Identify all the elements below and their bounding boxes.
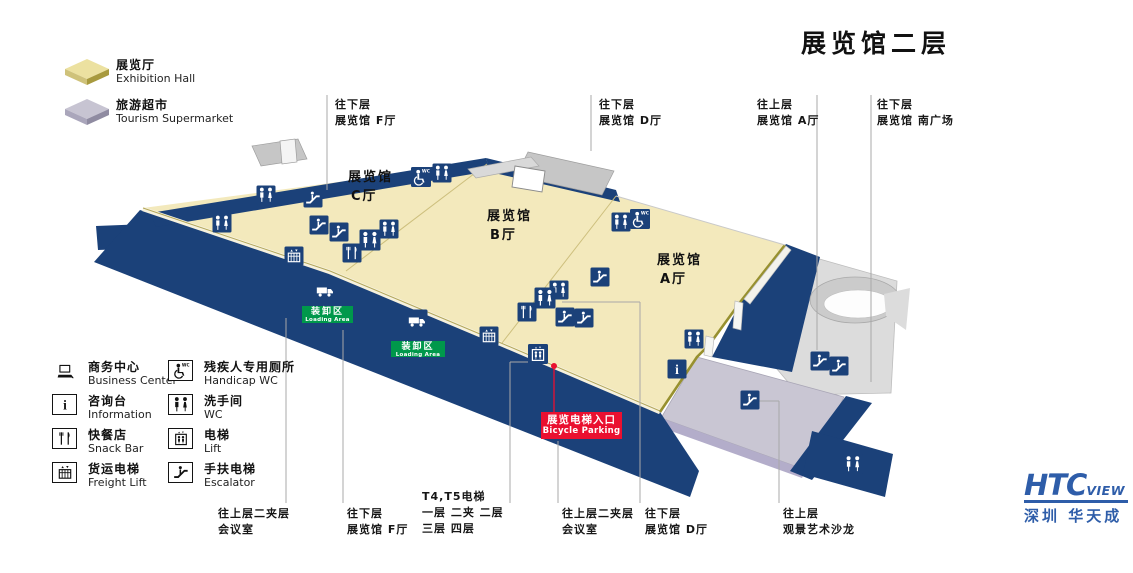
hall-label-C厅: 展览馆C厅	[348, 168, 393, 206]
salon-ring-inner	[824, 290, 892, 318]
lift-legend-text: 电梯Lift	[204, 428, 230, 455]
roof-doorway	[512, 166, 545, 192]
wc-icon-bg	[433, 164, 452, 183]
wc-label-zh: 洗手间	[204, 394, 243, 408]
tourism-supermarket-swatch-icon	[62, 96, 112, 130]
hall-label-A厅: 展览馆A厅	[657, 251, 702, 289]
htcview-logo-wordmark: HTCVIEW	[1024, 471, 1128, 503]
exhibition-hall-swatch-icon	[62, 56, 112, 90]
wc-icon	[535, 288, 556, 309]
information-label-zh: 咨询台	[88, 394, 152, 408]
callout-line: 观景艺术沙龙	[783, 522, 855, 538]
callout-line: 往上层	[757, 97, 819, 113]
legend-item-exhibition-hall: 展览厅Exhibition Hall	[62, 56, 112, 94]
information-icon-glyph	[675, 362, 679, 377]
wc-icon	[360, 230, 381, 251]
callout-label-9: 往上层观景艺术沙龙	[783, 506, 855, 538]
wc-legend-glyph	[170, 395, 192, 414]
business-center-legend-icon	[52, 360, 80, 383]
wc-icon-bg	[380, 220, 399, 239]
wc-icon	[257, 186, 276, 205]
hall-name: 展览馆	[657, 251, 702, 270]
freight-lift-icon	[480, 327, 499, 346]
wc-legend-icon	[168, 394, 193, 415]
callout-line: T4,T5电梯	[422, 489, 504, 505]
snack-bar-icon-bg	[518, 303, 537, 322]
handicap-wc-legend-glyph	[170, 361, 192, 380]
escalator-legend-glyph-use	[174, 466, 187, 477]
exhibition-hall-legend-text: 展览厅Exhibition Hall	[116, 58, 195, 85]
freight-lift-legend-icon	[52, 462, 77, 483]
floor-map-canvas: WC i	[0, 0, 1133, 573]
snack-bar-legend-glyph	[54, 429, 76, 448]
callout-label-8: 往下层展览馆 D厅	[645, 506, 708, 538]
escalator-icon	[575, 309, 594, 328]
callout-label-0: 往下层展览馆 F厅	[335, 97, 396, 129]
handicap-wc-icon	[630, 209, 650, 229]
freight-lift-icon	[285, 247, 304, 266]
roof-structure	[252, 139, 307, 166]
hall-a-wall-column	[704, 336, 714, 357]
callout-line: 往下层	[347, 506, 408, 522]
callout-line: 会议室	[562, 522, 634, 538]
callout-line: 展览馆 D厅	[599, 113, 662, 129]
loading-area-zh: 装卸区	[302, 308, 353, 317]
business-center-legend-glyph-use	[58, 365, 74, 378]
callout-line: 往上层	[783, 506, 855, 522]
loading-area-en: Loading Area	[391, 352, 445, 358]
callout-label-2: 往上层展览馆 A厅	[757, 97, 819, 129]
lift-legend-icon	[168, 428, 193, 449]
bicycle-parking-label: 展览电梯入口 Bicycle Parking	[541, 412, 622, 439]
exhibition-hall-label-en: Exhibition Hall	[116, 72, 195, 85]
page-title: 展览馆二层	[801, 24, 951, 60]
freight-lift-label-zh: 货运电梯	[88, 462, 147, 476]
loading-area-en: Loading Area	[302, 317, 353, 323]
freight-lift-legend-glyph	[54, 463, 76, 482]
information-legend-text: 咨询台Information	[88, 394, 152, 421]
snack-bar-icon	[343, 244, 362, 263]
callout-line: 往下层	[877, 97, 954, 113]
callout-label-6: T4,T5电梯一层 二夹 二层三层 四层	[422, 489, 504, 537]
callout-label-5: 往下层展览馆 F厅	[347, 506, 408, 538]
logo-view-text: VIEW	[1086, 483, 1125, 498]
hall-name: 展览馆	[348, 168, 393, 187]
exhibition-hall-label-zh: 展览厅	[116, 58, 195, 72]
escalator-icon	[811, 352, 830, 371]
escalator-legend-text: 手扶电梯Escalator	[204, 462, 256, 489]
callout-line: 展览馆 A厅	[757, 113, 819, 129]
business-center-legend-text: 商务中心Business Center	[88, 360, 177, 387]
escalator-label-en: Escalator	[204, 476, 256, 489]
snack-bar-icon	[518, 303, 537, 322]
freight-lift-label-en: Freight Lift	[88, 476, 147, 489]
handicap-wc-legend-icon	[168, 360, 193, 381]
hall-id: B厅	[487, 226, 532, 245]
snack-bar-icon-bg	[343, 244, 362, 263]
wc-icon-bg	[360, 230, 381, 251]
wc-legend-text: 洗手间WC	[204, 394, 243, 421]
snack-bar-label-en: Snack Bar	[88, 442, 143, 455]
escalator-label-zh: 手扶电梯	[204, 462, 256, 476]
callout-line: 往下层	[599, 97, 662, 113]
hall-id: C厅	[348, 187, 393, 206]
lift-label-en: Lift	[204, 442, 230, 455]
handicap-wc-legend-text: 残疾人专用厕所Handicap WC	[204, 360, 295, 387]
callout-line: 往上层二夹层	[218, 506, 290, 522]
escalator-icon	[591, 268, 610, 287]
handicap-wc-legend-glyph-use	[174, 362, 189, 378]
snack-bar-legend-icon	[52, 428, 77, 449]
callout-label-1: 往下层展览馆 D厅	[599, 97, 662, 129]
wc-icon	[612, 213, 631, 232]
callout-line: 展览馆 F厅	[347, 522, 408, 538]
tourism-supermarket-label-zh: 旅游超市	[116, 98, 233, 112]
lift-legend-glyph	[170, 429, 192, 448]
loading-area-label-1: 装卸区Loading Area	[302, 306, 353, 323]
logo-htc-text: HTC	[1024, 468, 1086, 502]
escalator-icon	[304, 189, 323, 208]
wc-icon-bg	[843, 454, 863, 474]
escalator-icon	[830, 357, 849, 376]
business-center-legend-glyph	[55, 362, 77, 381]
wc-icon	[685, 330, 704, 349]
escalator-icon	[330, 223, 349, 242]
information-icon	[668, 360, 687, 379]
callout-line: 一层 二夹 二层	[422, 505, 504, 521]
logo-company-text: 深圳 华天成	[1024, 505, 1128, 526]
business-center-label-en: Business Center	[88, 374, 177, 387]
callout-label-3: 往下层展览馆 南广场	[877, 97, 954, 129]
bicycle-parking-label-zh: 展览电梯入口	[541, 415, 622, 426]
hall-a-wall-column	[733, 301, 743, 330]
escalator-icon	[556, 308, 575, 327]
business-center-label-zh: 商务中心	[88, 360, 177, 374]
loading-area-label-2: 装卸区Loading Area	[391, 341, 445, 357]
wc-icon-bg	[213, 214, 232, 233]
snack-bar-legend-text: 快餐店Snack Bar	[88, 428, 143, 455]
hall-name: 展览馆	[487, 207, 532, 226]
entrance-dot	[551, 363, 557, 369]
wc-icon	[843, 454, 863, 474]
truck-icon	[315, 280, 336, 301]
wc-legend-glyph-use	[174, 397, 186, 411]
escalator-legend-glyph	[170, 463, 192, 482]
lift-legend-glyph-use	[175, 432, 186, 445]
wc-icon	[433, 164, 452, 183]
snack-bar-legend-glyph-use	[59, 432, 69, 444]
tourism-supermarket-legend-text: 旅游超市Tourism Supermarket	[116, 98, 233, 125]
callout-line: 展览馆 D厅	[645, 522, 708, 538]
hall-label-B厅: 展览馆B厅	[487, 207, 532, 245]
loading-area-zh: 装卸区	[391, 343, 445, 352]
information-label-en: Information	[88, 408, 152, 421]
wc-icon-bg	[685, 330, 704, 349]
information-legend-icon	[52, 394, 77, 415]
wc-icon	[380, 220, 399, 239]
handicap-wc-label-en: Handicap WC	[204, 374, 295, 387]
callout-line: 三层 四层	[422, 521, 504, 537]
callout-line: 会议室	[218, 522, 290, 538]
information-legend-glyph-use	[63, 398, 67, 413]
freight-lift-legend-glyph-use	[59, 466, 70, 478]
callout-label-7: 往上层二夹层会议室	[562, 506, 634, 538]
callout-line: 往下层	[335, 97, 396, 113]
snack-bar-label-zh: 快餐店	[88, 428, 143, 442]
callout-line: 往下层	[645, 506, 708, 522]
truck-icon	[407, 310, 428, 331]
hall-id: A厅	[657, 270, 702, 289]
bicycle-parking-label-en: Bicycle Parking	[541, 426, 622, 436]
wc-icon	[213, 214, 232, 233]
callout-label-4: 往上层二夹层会议室	[218, 506, 290, 538]
freight-lift-legend-text: 货运电梯Freight Lift	[88, 462, 147, 489]
callout-line: 展览馆 南广场	[877, 113, 954, 129]
callout-line: 往上层二夹层	[562, 506, 634, 522]
handicap-wc-icon	[411, 167, 431, 187]
tourism-supermarket-label-en: Tourism Supermarket	[116, 112, 233, 125]
callout-line: 展览馆 F厅	[335, 113, 396, 129]
wc-icon-bg	[612, 213, 631, 232]
escalator-legend-icon	[168, 462, 193, 483]
lift-label-zh: 电梯	[204, 428, 230, 442]
handicap-wc-label-zh: 残疾人专用厕所	[204, 360, 295, 374]
wc-label-en: WC	[204, 408, 243, 421]
escalator-icon	[741, 391, 760, 410]
information-legend-glyph	[54, 395, 76, 414]
htcview-logo: HTCVIEW 深圳 华天成	[1024, 471, 1128, 526]
legend-item-tourism-supermarket: 旅游超市Tourism Supermarket	[62, 96, 112, 134]
lift-icon	[528, 344, 548, 364]
escalator-icon	[310, 216, 329, 235]
wc-icon-bg	[257, 186, 276, 205]
roof-structure	[280, 139, 297, 164]
wc-icon-bg	[535, 288, 556, 309]
exhibition-floor-map-page: WC i	[0, 0, 1133, 573]
